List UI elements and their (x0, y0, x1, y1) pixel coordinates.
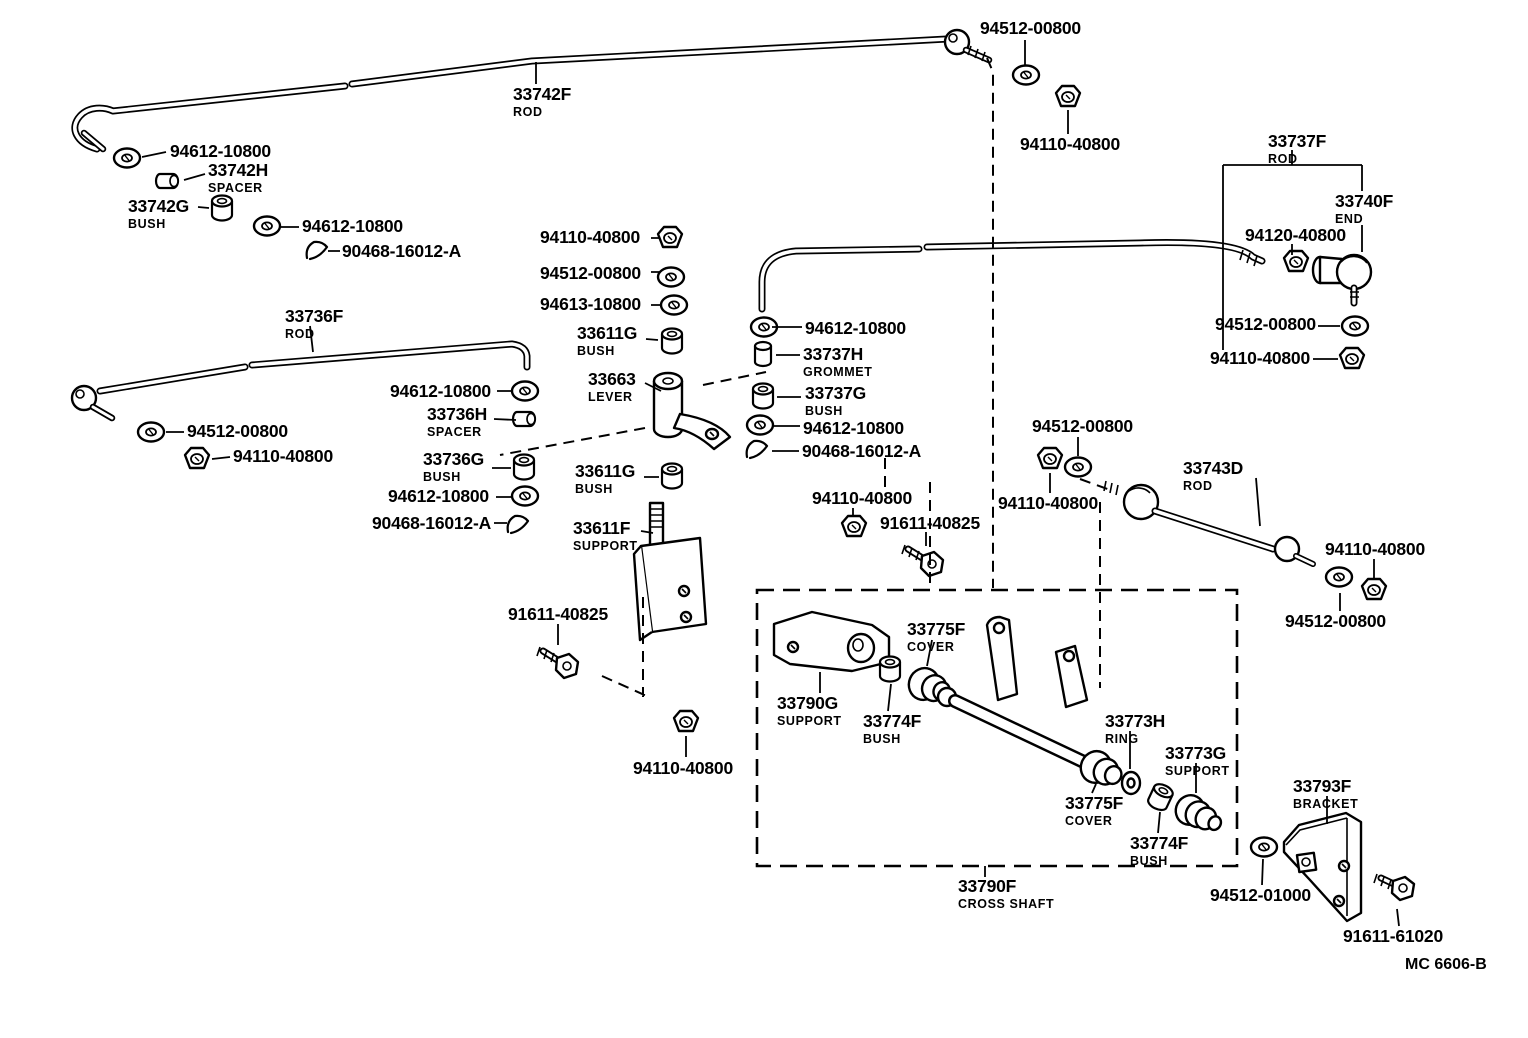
washer-icon (138, 423, 164, 442)
bracket-33793f-drawing (1284, 813, 1361, 921)
parts-diagram-drawing (0, 0, 1528, 1038)
bolt-91611-61020-icon (1374, 874, 1414, 900)
bush-33774f-icon (880, 657, 900, 682)
nut-icon (1362, 579, 1386, 599)
washer-icon (1251, 838, 1277, 857)
nut-icon (658, 227, 682, 247)
spacer-icon (513, 412, 535, 426)
parts-catalog-page: 94512-0080094110-4080094612-1080033742HS… (0, 0, 1528, 1038)
tie-rod-end-33740f-drawing (1313, 255, 1371, 303)
support-33790g-drawing (774, 612, 889, 671)
washer-icon (658, 268, 684, 287)
washer-icon (1013, 66, 1039, 85)
grommet-icon (755, 342, 771, 366)
support-33773g-drawing (1171, 790, 1227, 839)
drawing-code: MC 6606-B (1405, 956, 1487, 974)
cover-33775f-rear-drawing (1076, 746, 1128, 793)
bush-icon (662, 464, 682, 489)
washer-icon (1326, 568, 1352, 587)
nut-icon (1340, 348, 1364, 368)
nut-icon (1056, 86, 1080, 106)
washer-icon (1342, 317, 1368, 336)
support-33611f-drawing (634, 503, 706, 640)
bush-icon (514, 455, 534, 480)
spacer-icon (156, 174, 178, 188)
bush-icon (212, 196, 232, 221)
washer-icon (1065, 458, 1091, 477)
washer-icon (254, 217, 280, 236)
nut-icon (674, 711, 698, 731)
washer-icon (512, 382, 538, 401)
cotter-pin-icon (747, 441, 767, 458)
nut-icon (842, 516, 866, 536)
bolt-91611-40825-icon (537, 647, 578, 678)
nut-icon (185, 448, 209, 468)
washer-icon (747, 416, 773, 435)
cross-shaft-33790f-drawing (938, 617, 1087, 763)
rod-33742f-drawing (75, 30, 989, 149)
rod-33743d-drawing (1104, 481, 1313, 564)
ring-33773h-icon (1122, 772, 1140, 794)
bush-icon (753, 384, 773, 409)
rod-33737f-drawing (762, 243, 1262, 309)
leader-lines (142, 40, 1399, 926)
dashed-reference-lines (500, 58, 1113, 697)
washer-icon (114, 149, 140, 168)
nut-icon (1038, 448, 1062, 468)
bolt-91611-40825-icon (902, 545, 943, 576)
cotter-pin-icon (307, 242, 327, 259)
bush-33774f-rear-icon (1146, 782, 1175, 813)
cotter-pin-icon (508, 516, 528, 533)
bush-icon (662, 329, 682, 354)
lever-33663-drawing (654, 373, 730, 449)
nut-icon (1284, 251, 1308, 271)
washer-icon (512, 487, 538, 506)
washer-icon (661, 296, 687, 315)
rod-33736f-drawing (72, 344, 527, 418)
